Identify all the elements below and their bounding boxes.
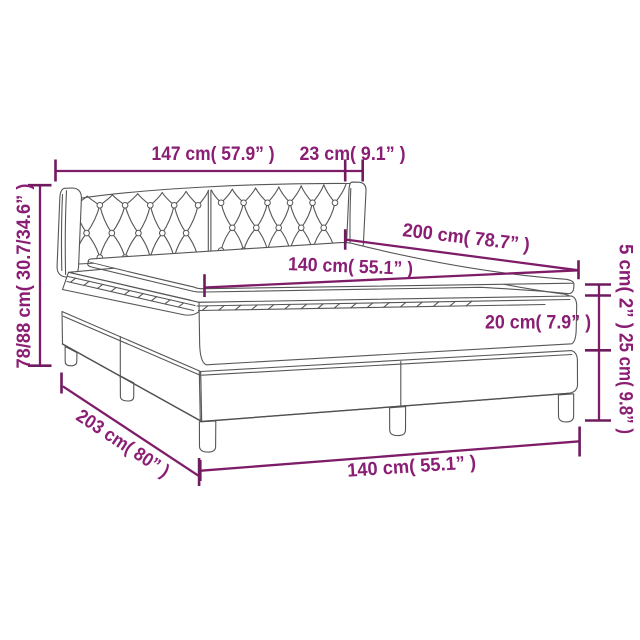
svg-text:25 cm( 9.8” ): 25 cm( 9.8” ) bbox=[615, 333, 636, 434]
svg-text:20 cm( 7.9” ): 20 cm( 7.9” ) bbox=[485, 312, 591, 333]
svg-text:147 cm( 57.9” ): 147 cm( 57.9” ) bbox=[152, 144, 275, 165]
svg-text:5 cm( 2” ): 5 cm( 2” ) bbox=[615, 244, 636, 329]
svg-text:23 cm( 9.1” ): 23 cm( 9.1” ) bbox=[300, 144, 406, 165]
svg-text:78/88 cm( 30.7/34.6” ): 78/88 cm( 30.7/34.6” ) bbox=[14, 184, 35, 369]
